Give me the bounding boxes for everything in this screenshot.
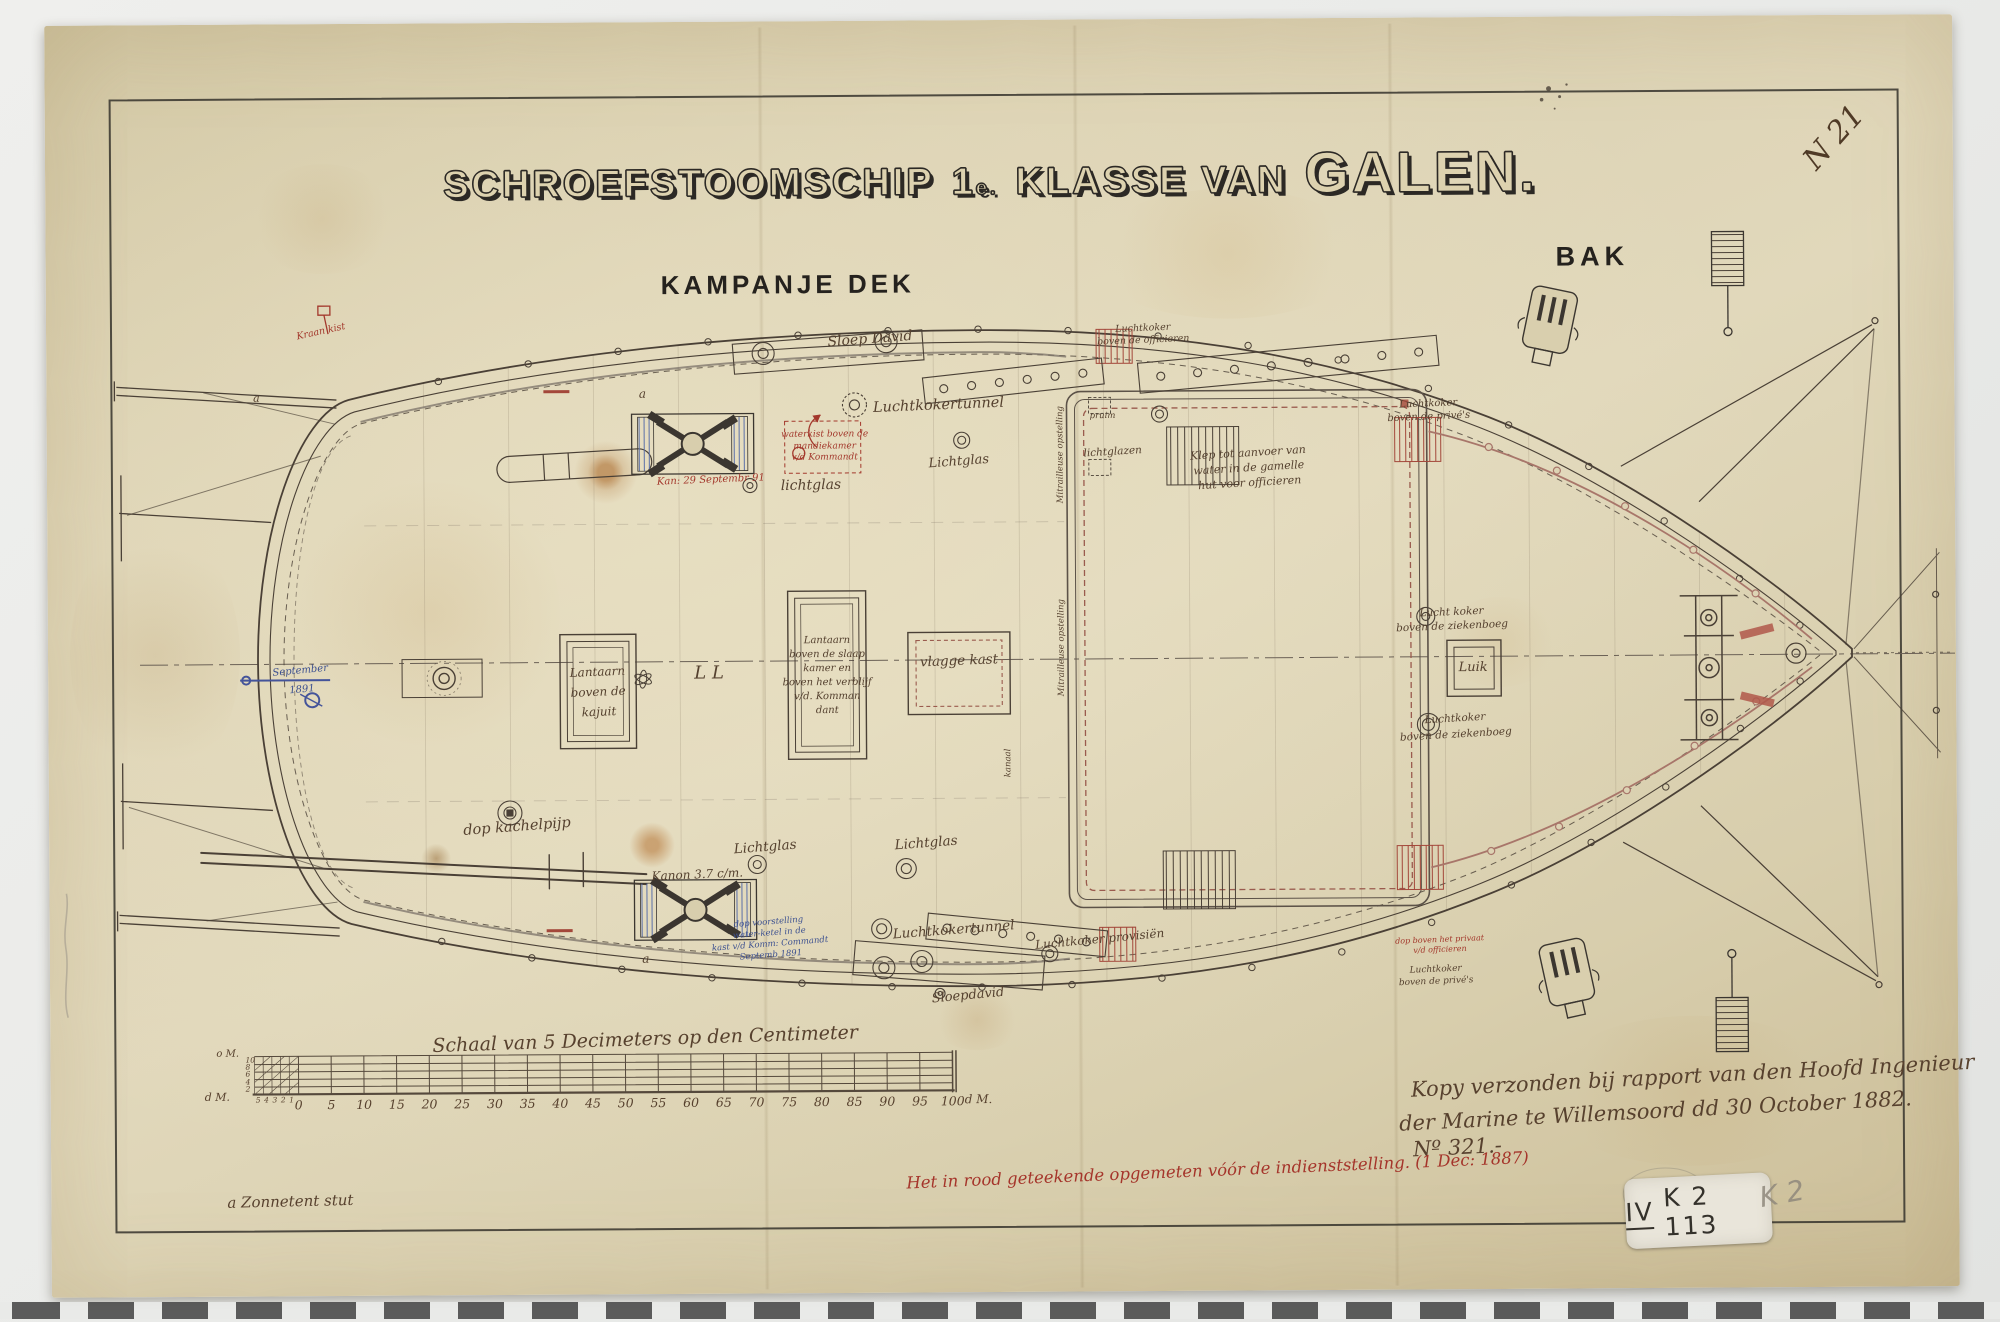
scale-tick-label: 5 [327, 1097, 335, 1112]
scale-tick-label: 30 [487, 1096, 503, 1111]
sticker-code: K 2 113 [1662, 1178, 1772, 1241]
scale-left-sub-value: 1 [289, 1095, 294, 1104]
scale-tick-label: 95 [912, 1093, 928, 1108]
scale-tick-label: 45 [585, 1095, 601, 1110]
scale-tick-labels: 0510152025303540455055606570758085909510… [0, 0, 2000, 1322]
archive-label-sticker: IV K 2 113 [1624, 1172, 1773, 1249]
scale-tick-label: 15 [389, 1097, 405, 1112]
scale-tick-label: 10 [356, 1097, 372, 1112]
scale-tick-label: 35 [520, 1096, 536, 1111]
scale-tick-label: 80 [814, 1094, 830, 1109]
scale-left-value: 8 [245, 1063, 250, 1072]
scale-left-value: 2 [246, 1084, 251, 1093]
scale-tick-label: 40 [552, 1096, 568, 1111]
drawing-sheet: SCHROEFSTOOMSCHIP 1e. KLASSE VAN GALEN. … [44, 14, 1960, 1298]
scale-tick-label: 60 [683, 1095, 699, 1110]
scale-left-value: 6 [246, 1070, 251, 1079]
scale-tick-label: 20 [422, 1096, 438, 1111]
photograph-of-drawing: SCHROEFSTOOMSCHIP 1e. KLASSE VAN GALEN. … [0, 0, 2000, 1322]
scale-tick-label: 50 [618, 1095, 634, 1110]
scale-left-value: 10 [245, 1056, 255, 1065]
sticker-roman-numeral: IV [1625, 1197, 1655, 1230]
scale-tick-label: 75 [781, 1094, 797, 1109]
bottom-cut-marks [0, 1302, 2000, 1319]
scale-tick-label: 25 [454, 1096, 470, 1111]
scale-left-sub-value: 2 [281, 1095, 286, 1104]
scale-left-value: 4 [246, 1077, 251, 1086]
scale-tick-label: 0 [295, 1097, 303, 1112]
scale-tick-label: 90 [879, 1094, 895, 1109]
scale-tick-label: 85 [847, 1094, 863, 1109]
scale-tick-label: 55 [650, 1095, 666, 1110]
scale-tick-label: 65 [716, 1095, 732, 1110]
scale-left-sub-value: 4 [264, 1095, 269, 1104]
scale-left-sub-value: 3 [272, 1095, 277, 1104]
scale-left-sub-value: 5 [256, 1096, 261, 1105]
scale-tick-label: 70 [749, 1094, 765, 1109]
scale-tick-label: 100 [941, 1093, 965, 1108]
